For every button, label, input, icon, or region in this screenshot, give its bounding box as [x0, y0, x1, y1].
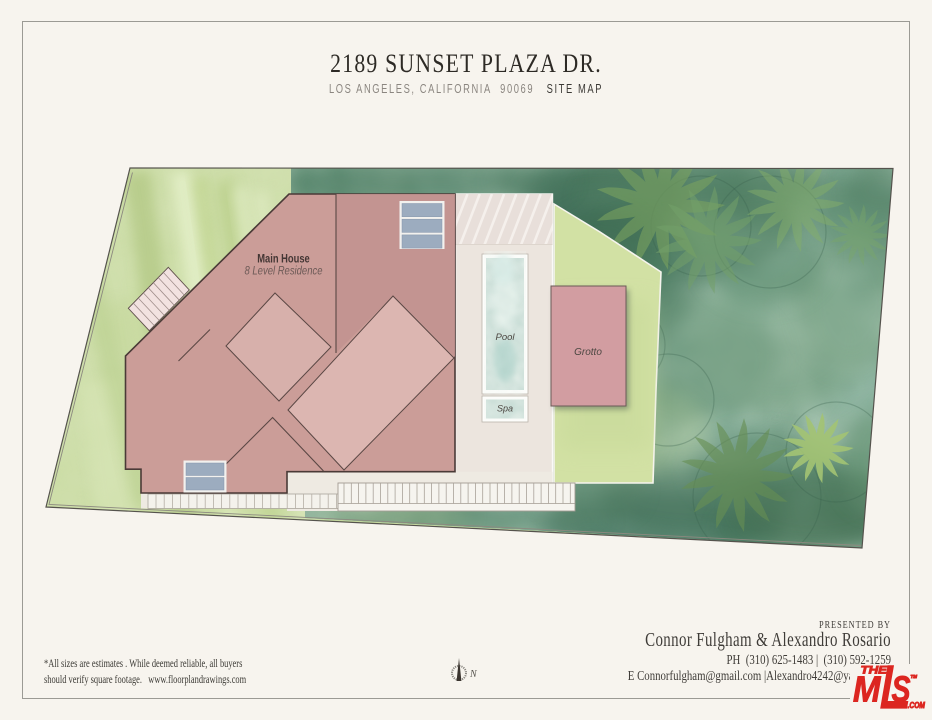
svg-text:TM: TM [911, 674, 918, 679]
svg-text:.COM: .COM [908, 701, 926, 710]
svg-text:Main House: Main House [257, 254, 310, 266]
svg-text:Pool: Pool [495, 332, 515, 343]
svg-text:Spa: Spa [497, 404, 513, 414]
svg-text:Grotto: Grotto [574, 347, 602, 358]
svg-text:N: N [469, 669, 478, 680]
svg-text:8 Level Residence: 8 Level Residence [245, 266, 323, 278]
svg-text:M: M [853, 669, 882, 710]
